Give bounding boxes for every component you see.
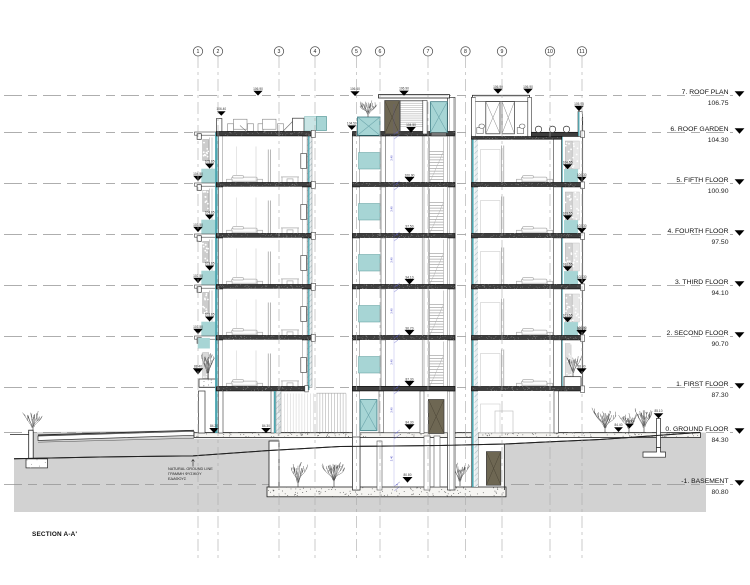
svg-text:104.30: 104.30 [708, 137, 729, 144]
svg-text:84.40: 84.40 [615, 423, 623, 427]
svg-text:101.55: 101.55 [563, 314, 573, 318]
svg-text:85.10: 85.10 [655, 409, 663, 413]
svg-text:104.55: 104.55 [563, 161, 573, 165]
svg-text:87.30: 87.30 [406, 378, 414, 382]
svg-text:100.90: 100.90 [405, 174, 415, 178]
svg-text:84.30: 84.30 [711, 437, 728, 444]
svg-text:7. ROOF PLAN: 7. ROOF PLAN [682, 89, 729, 96]
svg-text:8: 8 [464, 49, 467, 55]
svg-text:90.70: 90.70 [406, 327, 414, 331]
svg-text:97.50: 97.50 [711, 239, 728, 246]
svg-text:SECTION A-A': SECTION A-A' [32, 531, 78, 538]
svg-text:94.10: 94.10 [406, 276, 414, 280]
svg-text:84.20: 84.20 [210, 424, 218, 428]
svg-text:ΕΔΑΦΟΥΣ: ΕΔΑΦΟΥΣ [168, 477, 187, 481]
svg-text:106.90: 106.90 [493, 85, 503, 89]
svg-text:84.30: 84.30 [262, 424, 270, 428]
svg-text:106.90: 106.90 [253, 87, 263, 91]
svg-text:6: 6 [379, 49, 382, 55]
svg-text:87.30: 87.30 [711, 392, 728, 399]
svg-text:84.60: 84.60 [626, 420, 634, 424]
svg-text:3.40: 3.40 [390, 155, 394, 161]
svg-text:90.70: 90.70 [578, 326, 586, 330]
svg-text:3.40: 3.40 [390, 206, 394, 212]
svg-text:106.90: 106.90 [399, 87, 409, 91]
svg-text:10: 10 [547, 49, 553, 55]
svg-text:1. FIRST FLOOR: 1. FIRST FLOOR [676, 381, 728, 388]
svg-text:100.90: 100.90 [708, 188, 729, 195]
svg-text:84.30: 84.30 [406, 420, 414, 424]
svg-text:ΓΡΑΜΜΗ ΦΥΣΙΚΟΥ: ΓΡΑΜΜΗ ΦΥΣΙΚΟΥ [168, 472, 202, 476]
svg-text:88.40: 88.40 [578, 365, 586, 369]
svg-text:106.60: 106.60 [350, 87, 360, 91]
svg-text:3: 3 [278, 49, 281, 55]
svg-text:106.90: 106.90 [523, 85, 533, 89]
svg-text:102.05: 102.05 [205, 313, 215, 317]
svg-text:3. THIRD FLOOR: 3. THIRD FLOOR [675, 279, 729, 286]
svg-text:2: 2 [217, 49, 220, 55]
svg-text:-1. BASEMENT: -1. BASEMENT [681, 478, 728, 485]
svg-text:90.70: 90.70 [711, 341, 728, 348]
svg-text:NATURAL GROUND LINE: NATURAL GROUND LINE [168, 467, 213, 471]
svg-text:3.40: 3.40 [390, 407, 394, 413]
svg-text:102.30: 102.30 [577, 275, 587, 279]
svg-text:94.10: 94.10 [711, 290, 728, 297]
svg-text:3.40: 3.40 [390, 359, 394, 365]
svg-text:104.50: 104.50 [406, 123, 416, 127]
svg-text:7: 7 [427, 49, 430, 55]
svg-text:105.95: 105.95 [574, 102, 584, 106]
svg-text:3.40: 3.40 [390, 455, 394, 461]
svg-text:102.55: 102.55 [563, 263, 573, 267]
svg-text:3.40: 3.40 [390, 308, 394, 314]
svg-text:104.05: 104.05 [205, 211, 215, 215]
svg-text:97.50: 97.50 [406, 225, 414, 229]
svg-text:0. GROUND FLOOR: 0. GROUND FLOOR [665, 426, 728, 433]
svg-text:4: 4 [314, 49, 317, 55]
svg-text:4. FOURTH FLOOR: 4. FOURTH FLOOR [667, 228, 728, 235]
svg-text:106.75: 106.75 [708, 100, 729, 107]
svg-text:104.50: 104.50 [347, 121, 357, 125]
svg-text:103.05: 103.05 [205, 262, 215, 266]
svg-text:6. ROOF GARDEN: 6. ROOF GARDEN [670, 126, 728, 133]
svg-text:11: 11 [579, 49, 584, 55]
svg-text:3.40: 3.40 [390, 257, 394, 263]
svg-text:1: 1 [197, 49, 200, 55]
svg-text:5: 5 [355, 49, 358, 55]
svg-text:5. FIFTH FLOOR: 5. FIFTH FLOOR [676, 177, 728, 184]
svg-text:80.80: 80.80 [711, 489, 728, 496]
svg-text:9: 9 [501, 49, 504, 55]
svg-text:105.05: 105.05 [205, 160, 215, 164]
svg-text:80.80: 80.80 [404, 473, 412, 477]
svg-text:103.55: 103.55 [563, 212, 573, 216]
svg-text:2. SECOND FLOOR: 2. SECOND FLOOR [667, 330, 729, 337]
